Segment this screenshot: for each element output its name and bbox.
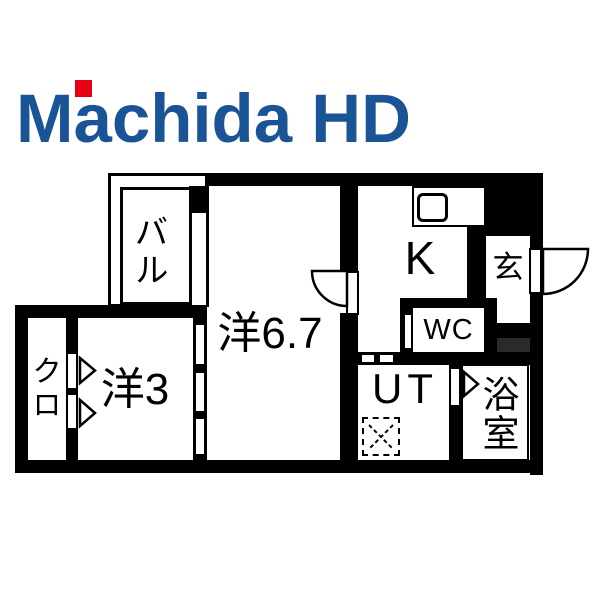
bedroom-label: 洋3	[80, 368, 190, 412]
main-room-label: 洋6.7	[200, 312, 340, 356]
door-triangle-icon	[464, 372, 478, 396]
toilet-label: WC	[413, 316, 484, 345]
front-door-swing-arc-icon	[543, 249, 588, 294]
washer-cross-icon	[369, 425, 393, 449]
closet-label: クロ	[28, 355, 58, 423]
utility-label: UT	[366, 368, 444, 410]
balcony-label: バル	[131, 214, 165, 290]
kitchen-label: K	[396, 235, 444, 281]
door-swing-arc-icon	[312, 271, 347, 306]
entrance-label: 玄	[486, 252, 530, 283]
door-symbols-overlay	[0, 0, 600, 600]
bathroom-label: 浴室	[479, 375, 516, 453]
floorplan-page: Machida HD バル 洋6.7 K 玄	[0, 0, 600, 600]
